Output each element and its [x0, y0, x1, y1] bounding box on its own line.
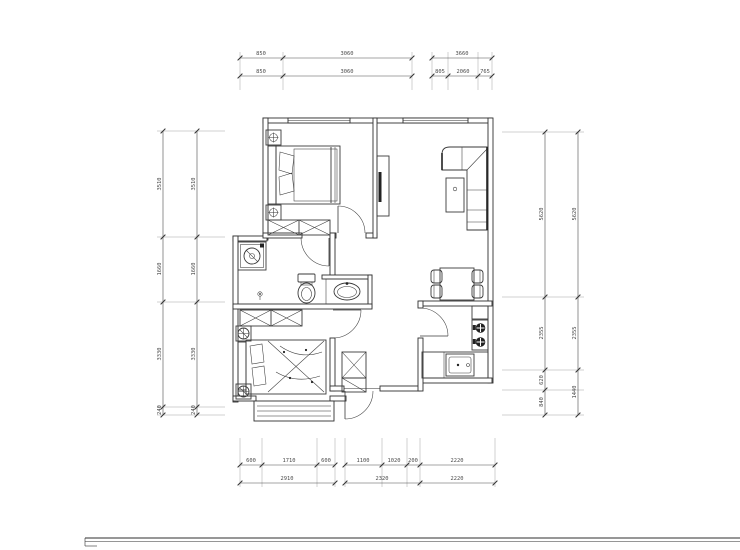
dim-top-row2: 850 3060 805 2060 765 — [238, 69, 495, 78]
dim-label: 850 — [256, 51, 266, 57]
title-block-edge — [85, 538, 740, 546]
walls — [233, 118, 493, 402]
dim-right-outer: 5620 2355 1440 — [572, 130, 580, 418]
master-bed — [268, 146, 340, 204]
dim-top-row1: 850 3060 3660 — [238, 51, 495, 60]
dim-label: 240 — [191, 405, 197, 415]
dim-label: 2320 — [376, 476, 389, 482]
washing-machine — [238, 242, 266, 270]
door-bedroom2 — [333, 310, 361, 338]
dim-bottom-row1: 600 1710 600 1100 1020 200 2220 — [238, 458, 498, 467]
dim-bottom-row2: 2910 2320 2220 — [238, 476, 498, 485]
dim-label: 1710 — [283, 458, 296, 464]
l-sofa — [442, 147, 487, 230]
dim-label: 3060 — [341, 69, 354, 75]
dim-label: 1100 — [357, 458, 370, 464]
dim-label: 200 — [408, 458, 418, 464]
extension-lines — [157, 52, 584, 487]
window-top-bedroom — [288, 118, 350, 123]
dim-label: 240 — [157, 405, 163, 415]
door-bedroom1 — [338, 206, 365, 233]
dim-label: 620 — [539, 375, 545, 385]
dim-label: 2910 — [281, 476, 294, 482]
dim-label: 765 — [480, 69, 490, 75]
dim-label: 2355 — [539, 327, 545, 340]
dim-label: 2220 — [451, 458, 464, 464]
washbasin — [326, 279, 368, 304]
door-bathroom — [301, 238, 329, 266]
dim-label: 5620 — [572, 208, 578, 221]
dim-right-inner: 5620 2355 620 840 — [539, 130, 547, 418]
dim-label: 600 — [321, 458, 331, 464]
floor-plan-page: 850 3060 3660 850 3060 805 2060 765 600 … — [0, 0, 740, 550]
dim-label: 1020 — [388, 458, 401, 464]
door-kitchen — [420, 308, 448, 336]
dim-label: 3060 — [341, 51, 354, 57]
door-entrance — [344, 389, 380, 420]
dim-left-inner: 3510 1660 3330 240 — [191, 129, 199, 418]
kitchen-sink — [446, 354, 474, 376]
dining-chairs — [431, 270, 483, 298]
dim-label: 2220 — [451, 476, 464, 482]
dim-label: 2060 — [457, 69, 470, 75]
kitchen-counter — [422, 352, 488, 378]
dim-label: 850 — [256, 69, 266, 75]
dim-label: 840 — [539, 397, 545, 407]
dim-label: 3510 — [157, 178, 163, 191]
floor-plan-canvas: 850 3060 3660 850 3060 805 2060 765 600 … — [0, 0, 740, 550]
dim-label: 2355 — [572, 327, 578, 340]
dim-label: 600 — [246, 458, 256, 464]
floor-drain — [258, 292, 262, 300]
dim-label: 3330 — [157, 348, 163, 361]
hall-closet — [342, 352, 366, 392]
dim-label: 3330 — [191, 348, 197, 361]
dim-label: 5620 — [539, 208, 545, 221]
dining-table — [440, 268, 474, 300]
dim-label: 3660 — [456, 51, 469, 57]
dim-left-outer: 3510 1660 3330 240 — [157, 129, 165, 418]
window-top-living — [403, 118, 468, 123]
dim-label: 805 — [435, 69, 445, 75]
wardrobe-bedroom2 — [240, 310, 302, 326]
fridge-cabinet — [472, 306, 488, 319]
bay-window — [254, 401, 334, 421]
dim-label: 1440 — [572, 386, 578, 399]
dim-label: 1660 — [191, 263, 197, 276]
toilet — [298, 274, 315, 303]
dim-label: 1660 — [157, 263, 163, 276]
stove-two-burners — [472, 320, 488, 350]
tv-cabinet — [377, 156, 389, 216]
dim-label: 3510 — [191, 178, 197, 191]
coffee-table — [446, 178, 464, 212]
